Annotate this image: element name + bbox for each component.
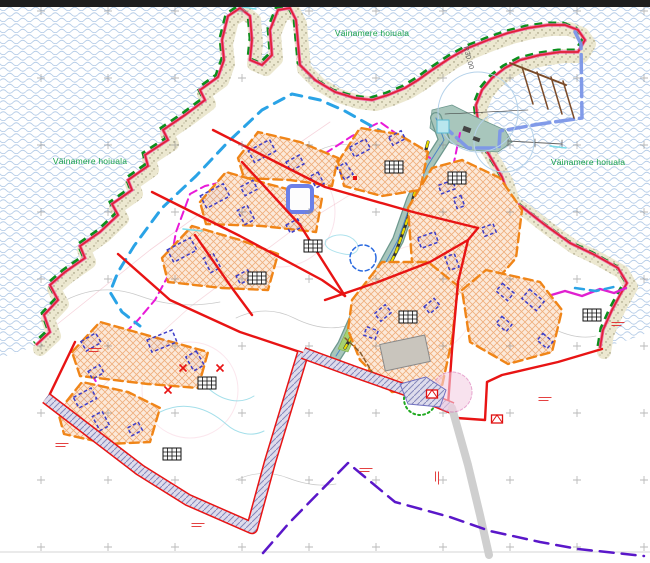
contour-cyan: [160, 406, 264, 434]
plan-boundary-red: [457, 349, 602, 420]
existing-building-highlight: [288, 186, 312, 212]
grid-cross: [640, 543, 648, 551]
grid-cross: [506, 543, 514, 551]
red-x-mark: [165, 387, 172, 394]
grid-cross: [37, 543, 45, 551]
grid-cross: [305, 409, 313, 417]
grid-cross: [439, 543, 447, 551]
grid-cross: [238, 74, 246, 82]
label-vainamere-hoiuala-top: Väinamere hoiuala: [335, 28, 409, 38]
grid-cross: [171, 409, 179, 417]
grid-cross: [372, 543, 380, 551]
grid-cross: [573, 342, 581, 350]
grid-cross: [238, 409, 246, 417]
window-top-bar: [0, 0, 650, 7]
grid-cross: [439, 476, 447, 484]
red-annotation: [436, 472, 439, 485]
grid-cross: [171, 208, 179, 216]
red-x-mark: [217, 365, 224, 372]
label-vainamere-hoiuala-west: Väinamere hoiuala: [53, 156, 127, 166]
red-annotation: [56, 444, 69, 447]
red-annotation: [539, 398, 552, 401]
grid-cross: [573, 275, 581, 283]
plot-j: [462, 270, 562, 364]
grid-cross: [104, 543, 112, 551]
boundary-purple-dashed: [263, 463, 644, 556]
grid-cross: [238, 543, 246, 551]
site-plan-map: [0, 0, 650, 563]
grid-cross: [506, 476, 514, 484]
grid-cross: [640, 342, 648, 350]
grid-cross: [506, 409, 514, 417]
grid-cross: [640, 476, 648, 484]
red-annotation: [192, 524, 205, 527]
gravel-road: [452, 408, 489, 555]
blue-dashed-circle: [350, 245, 376, 271]
grid-cross: [573, 476, 581, 484]
grid-cross: [238, 342, 246, 350]
contour-gray: [66, 290, 220, 305]
contour-gray: [236, 311, 346, 328]
grid-cross: [372, 208, 380, 216]
plot-f: [338, 128, 428, 196]
grid-cross: [37, 409, 45, 417]
site-plan-screenshot: Väinamere hoiuala Väinamere hoiuala Väin…: [0, 0, 650, 563]
grid-cross: [305, 275, 313, 283]
utility-symbol: [492, 415, 503, 423]
red-annotation: [360, 469, 373, 472]
plot-boundary-red: [48, 342, 75, 398]
grid-cross: [305, 543, 313, 551]
contour-gray: [236, 473, 336, 485]
restriction-line-blue: [575, 286, 618, 291]
slipway: [437, 120, 449, 133]
red-point: [353, 176, 357, 180]
grid-cross: [640, 409, 648, 417]
grid-cross: [37, 476, 45, 484]
grid-cross: [372, 409, 380, 417]
grid-cross: [104, 476, 112, 484]
grid-cross: [573, 409, 581, 417]
grid-cross: [305, 476, 313, 484]
grid-cross: [171, 543, 179, 551]
label-vainamere-hoiuala-east: Väinamere hoiuala: [551, 157, 625, 167]
grid-cross: [238, 476, 246, 484]
contour-cyan: [325, 235, 358, 254]
utility-symbol: [427, 390, 438, 398]
restriction-line-magenta: [548, 288, 626, 296]
